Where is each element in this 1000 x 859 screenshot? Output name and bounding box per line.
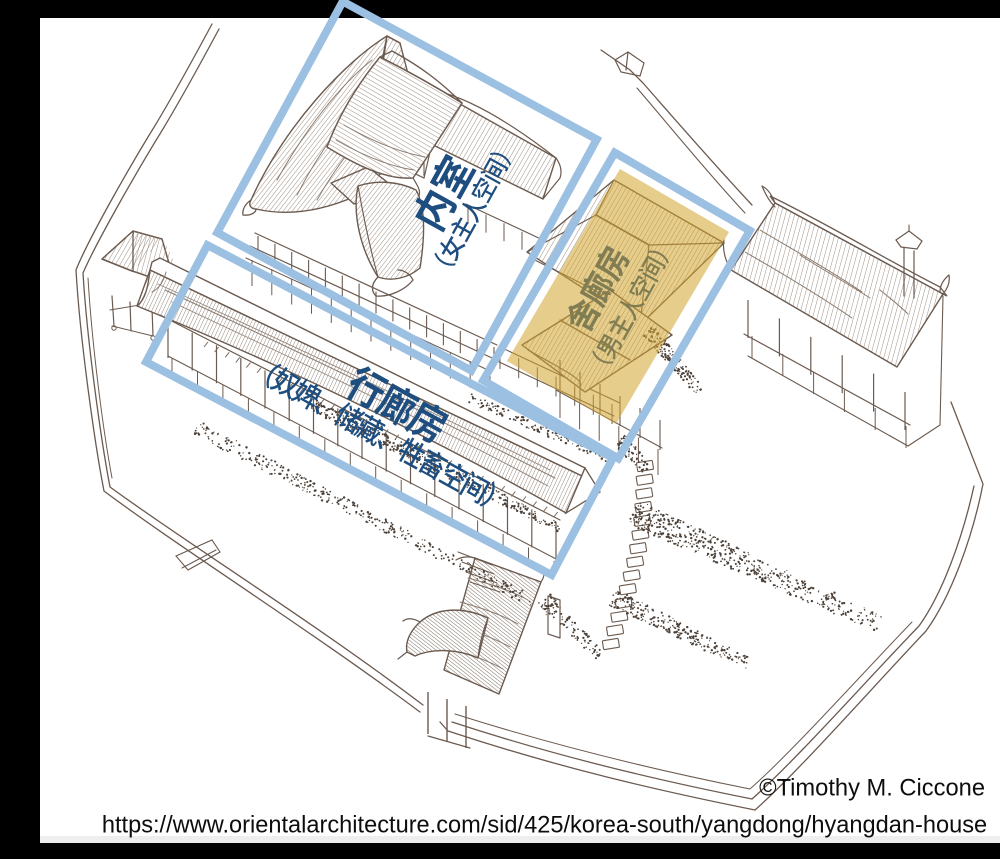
svg-text:https://www.orientalarchitectu: https://www.orientalarchitecture.com/sid… — [102, 813, 987, 839]
svg-text:©Timothy M. Ciccone: ©Timothy M. Ciccone — [759, 776, 985, 802]
